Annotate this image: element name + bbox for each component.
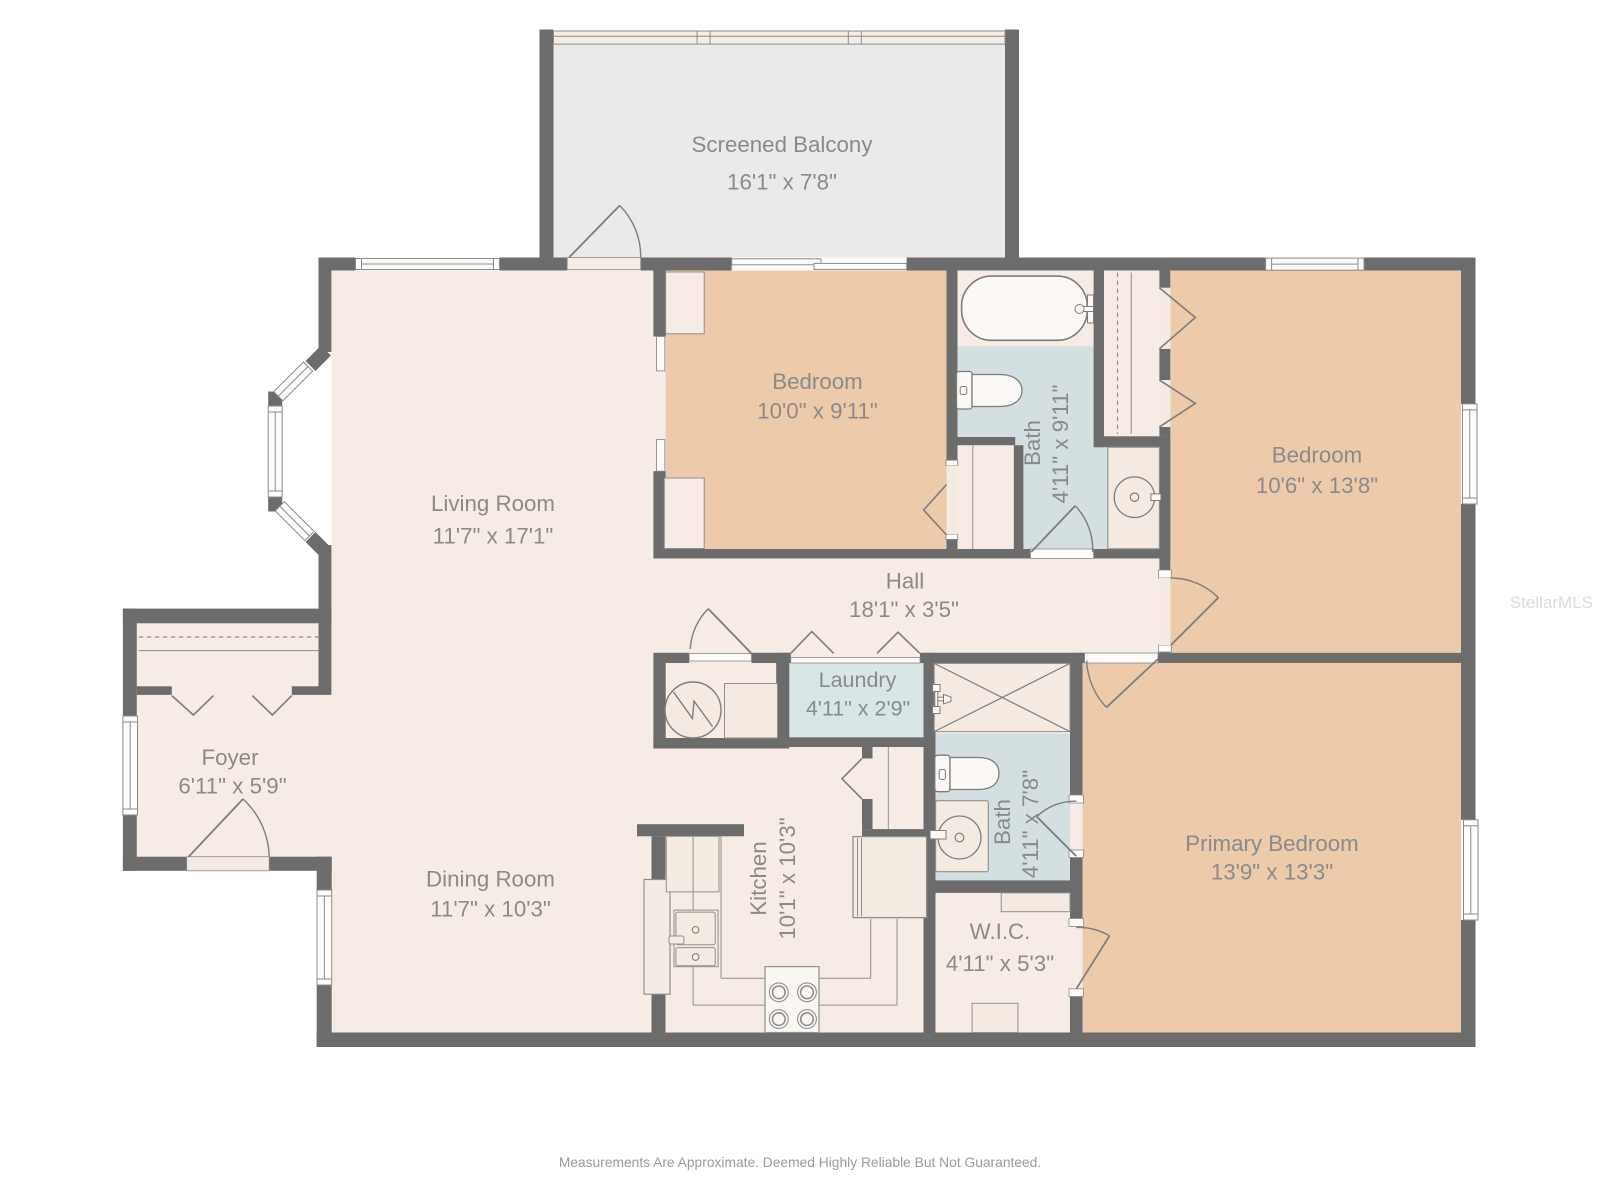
svg-text:W.I.C.: W.I.C. <box>970 919 1031 944</box>
svg-text:13'9" x 13'3": 13'9" x 13'3" <box>1211 860 1333 885</box>
svg-text:Bedroom: Bedroom <box>1272 443 1362 468</box>
svg-text:4'11" x 2'9": 4'11" x 2'9" <box>806 697 910 721</box>
svg-text:Bath: Bath <box>990 799 1015 845</box>
svg-text:Dining Room: Dining Room <box>426 867 555 892</box>
svg-text:Foyer: Foyer <box>202 745 260 770</box>
svg-text:StellarMLS: StellarMLS <box>1510 593 1593 612</box>
svg-text:10'6" x 13'8": 10'6" x 13'8" <box>1256 473 1378 498</box>
svg-text:11'7" x 17'1": 11'7" x 17'1" <box>433 524 554 549</box>
svg-text:Hall: Hall <box>886 569 924 594</box>
svg-text:Kitchen: Kitchen <box>746 841 771 915</box>
svg-text:4'11" x 9'11": 4'11" x 9'11" <box>1048 385 1073 504</box>
svg-text:11'7" x 10'3": 11'7" x 10'3" <box>430 897 551 922</box>
svg-text:Living Room: Living Room <box>431 491 555 516</box>
svg-text:Primary Bedroom: Primary Bedroom <box>1185 831 1358 856</box>
svg-text:Laundry: Laundry <box>819 668 897 692</box>
svg-text:10'1" x 10'3": 10'1" x 10'3" <box>775 817 800 939</box>
svg-text:6'11" x 5'9": 6'11" x 5'9" <box>178 774 286 799</box>
svg-text:4'11" x 7'8": 4'11" x 7'8" <box>1018 770 1043 878</box>
svg-text:18'1" x 3'5": 18'1" x 3'5" <box>849 597 959 622</box>
svg-text:Measurements Are Approximate.: Measurements Are Approximate. Deemed Hig… <box>559 1155 1041 1170</box>
svg-text:16'1" x 7'8": 16'1" x 7'8" <box>727 170 837 195</box>
svg-text:4'11" x 5'3": 4'11" x 5'3" <box>946 951 1054 976</box>
svg-text:Bedroom: Bedroom <box>772 369 862 394</box>
svg-text:Bath: Bath <box>1020 420 1045 466</box>
svg-text:Screened Balcony: Screened Balcony <box>692 132 874 157</box>
svg-text:10'0" x 9'11": 10'0" x 9'11" <box>757 399 878 424</box>
